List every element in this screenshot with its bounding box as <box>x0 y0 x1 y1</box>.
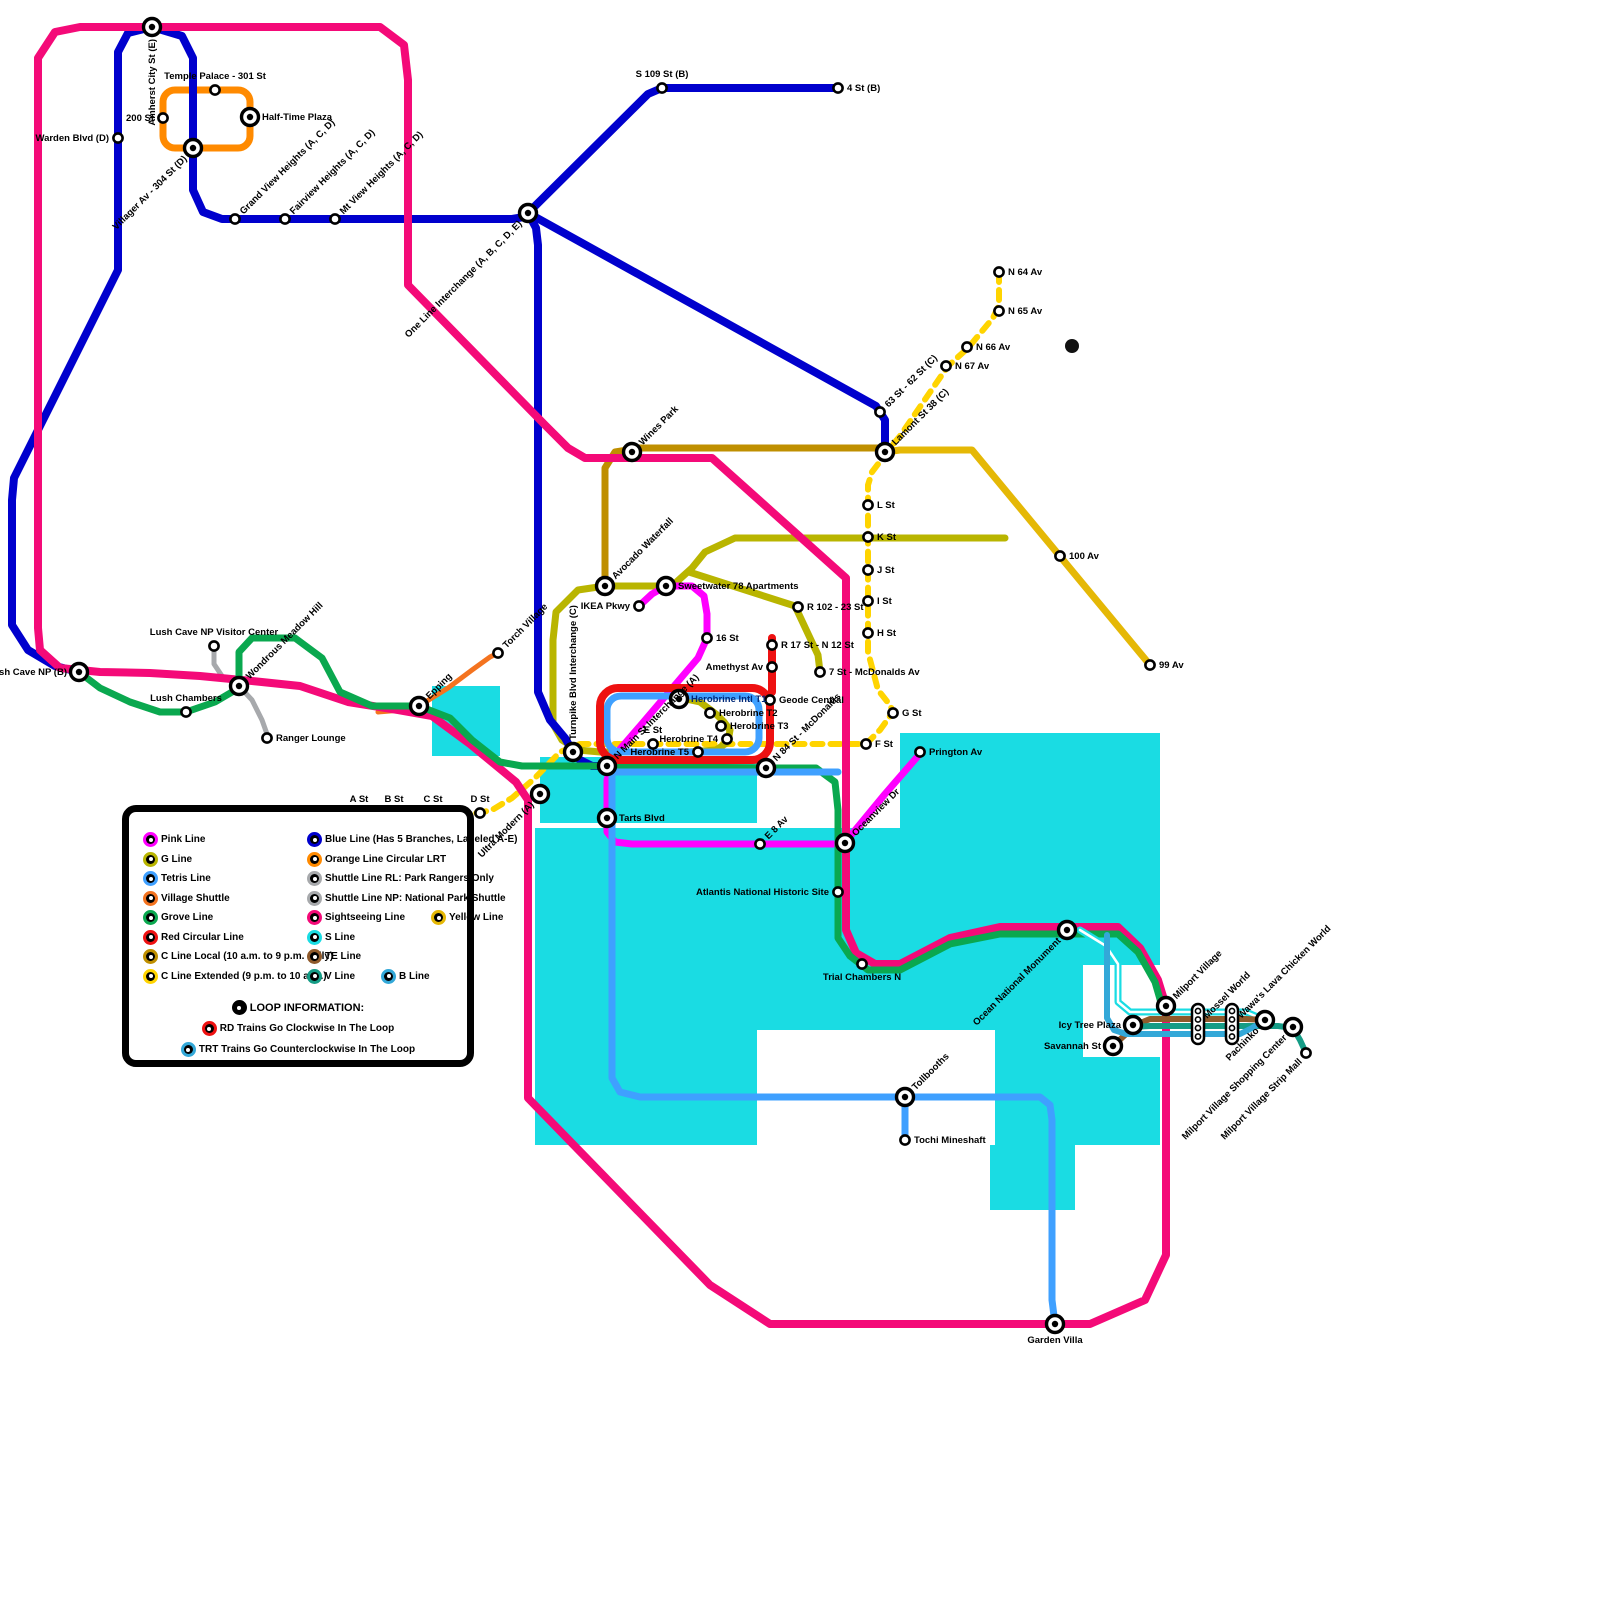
legend-line-icon <box>143 832 158 847</box>
station-label-fairview-heights: Fairview Heights (A, C, D) <box>288 127 378 217</box>
legend-left-column: Pink LineG LineTetris LineVillage Shuttl… <box>143 830 333 986</box>
station-amherst-city-dot <box>149 24 155 30</box>
legend-item-label: V Line <box>325 971 355 982</box>
station-label-ikea-pkwy: IKEA Pkwy <box>581 601 631 612</box>
station-turnpike-blvd-dot <box>570 749 576 755</box>
legend-item: G Line <box>143 850 333 870</box>
station-label-f-st: F St <box>875 739 894 750</box>
station-label-herobrine-t5: Herobrine T5 <box>630 747 689 758</box>
station-label-lush-cave-visitor-center: Lush Cave NP Visitor Center <box>150 627 279 638</box>
station-wawa-lava-chicken-node <box>1229 1008 1234 1013</box>
station-label-c-st: C St <box>424 794 444 805</box>
map-area-water <box>990 1145 1075 1210</box>
legend-line-icon <box>307 832 322 847</box>
legend-item: TE Line <box>307 947 517 967</box>
station-atlantis-site <box>833 887 842 896</box>
station-label-200-st: 200 St <box>126 113 155 124</box>
station-label-n-66-av: N 66 Av <box>976 342 1011 353</box>
station-lush-cave-visitor-center <box>209 641 218 650</box>
station-herobrine-t3 <box>716 721 725 730</box>
station-label-n-65-av: N 65 Av <box>1008 306 1043 317</box>
station-grand-view-heights <box>230 214 239 223</box>
station-avocado-waterfall-dot <box>602 583 608 589</box>
station-label-lush-cave-np: Lush Cave NP (B) <box>0 667 67 678</box>
station-mossel-world-node <box>1195 1034 1200 1039</box>
station-label-n-64-av: N 64 Av <box>1008 267 1043 278</box>
legend-item: S Line <box>307 928 517 948</box>
station-label-tarts-blvd: Tarts Blvd <box>619 813 665 824</box>
station-half-time-plaza-dot <box>247 114 253 120</box>
station-g-st <box>888 708 897 717</box>
legend-item: Blue Line (Has 5 Branches, Labeled A-E) <box>307 830 517 850</box>
legend-item: Orange Line Circular LRT <box>307 850 517 870</box>
station-d-st <box>475 808 484 817</box>
legend-line-icon <box>143 969 158 984</box>
legend-item-label: Grove Line <box>161 912 213 923</box>
station-label-herobrine-t1: Herobrine Intl T1 <box>691 694 767 705</box>
legend-item: Shuttle Line NP: National Park Shuttle <box>307 889 517 909</box>
station-mossel-world-node <box>1195 1008 1200 1013</box>
station-milport-village-dot <box>1163 1003 1169 1009</box>
legend-item-label: Tetris Line <box>161 873 211 884</box>
station-h-st <box>863 628 872 637</box>
station-milport-shopping-center-dot <box>1290 1024 1296 1030</box>
legend-line-icon <box>431 910 446 925</box>
legend-item-label: Orange Line Circular LRT <box>325 854 446 865</box>
station-label-j-st: J St <box>877 565 895 576</box>
station-200-st <box>158 113 167 122</box>
station-label-g-st: G St <box>902 708 922 719</box>
station-label-tochi-mineshaft: Tochi Mineshaft <box>914 1135 986 1146</box>
loop-info-item: RD Trains Go Clockwise In The Loop <box>129 1021 467 1036</box>
station-milport-strip-mall <box>1301 1048 1310 1057</box>
station-wines-park-dot <box>629 449 635 455</box>
station-epping-dot <box>416 703 422 709</box>
station-sweetwater-78-dot <box>663 583 669 589</box>
station-label-r-17-st: R 17 St - N 12 St <box>781 640 855 651</box>
station-label-sweetwater-78: Sweetwater 78 Apartments <box>678 581 799 592</box>
station-n-main-st-dot <box>604 763 610 769</box>
decor-black-dot <box>1065 339 1079 353</box>
station-label-mt-view-heights: Mt View Heights (A, C, D) <box>338 129 426 217</box>
station-label-16-st: 16 St <box>716 633 740 644</box>
station-oceanview-dr-dot <box>842 840 848 846</box>
legend-item-label: Sightseeing Line <box>325 912 405 923</box>
station-n-84-st-dot <box>763 765 769 771</box>
legend-line-icon <box>143 910 158 925</box>
transit-map-canvas: Amherst City St (E)Temple Palace - 301 S… <box>0 0 1600 1600</box>
station-label-villager-av: Villager Av - 304 St (D) <box>111 154 190 233</box>
legend-item: Sightseeing Line <box>307 908 405 928</box>
station-lamont-st-38-dot <box>882 449 888 455</box>
station-label-turnpike-blvd: Turnpike Blvd Interchange (C) <box>568 605 579 740</box>
station-fairview-heights <box>280 214 289 223</box>
station-label-herobrine-t2: Herobrine T2 <box>719 708 778 719</box>
station-wawa-lava-chicken-node <box>1229 1017 1234 1022</box>
legend-item-label: Red Circular Line <box>161 932 244 943</box>
loop-info-line-icon <box>202 1021 217 1036</box>
legend-right-column: Blue Line (Has 5 Branches, Labeled A-E)O… <box>307 830 517 986</box>
legend-line-icon <box>307 930 322 945</box>
loop-info-item: TRT Trains Go Counterclockwise In The Lo… <box>129 1042 467 1057</box>
legend-line-icon <box>307 891 322 906</box>
station-herobrine-t2 <box>705 708 714 717</box>
station-geode-central <box>765 695 774 704</box>
station-label-ranger-lounge: Ranger Lounge <box>276 733 346 744</box>
line-orange-loop <box>163 90 250 148</box>
station-label-h-st: H St <box>877 628 897 639</box>
legend-line-icon <box>143 930 158 945</box>
station-herobrine-t5 <box>693 747 702 756</box>
station-one-line-interchange-dot <box>525 210 531 216</box>
legend-item: C Line Local (10 a.m. to 9 p.m. daily) <box>143 947 333 967</box>
station-label-100-av: 100 Av <box>1069 551 1100 562</box>
station-herobrine-t4 <box>722 734 731 743</box>
legend-item: Pink Line <box>143 830 333 850</box>
legend-line-icon <box>143 949 158 964</box>
station-mt-view-heights <box>330 214 339 223</box>
legend-item: B Line <box>381 967 430 987</box>
transit-map-page: Amherst City St (E)Temple Palace - 301 S… <box>0 0 1600 1600</box>
station-label-lush-chambers: Lush Chambers <box>150 693 222 704</box>
station-k-st <box>863 532 872 541</box>
station-label-s-109-st: S 109 St (B) <box>636 69 689 80</box>
station-label-milport-village: Milport Village <box>1171 948 1225 1002</box>
station-f-st <box>861 739 870 748</box>
loop-info-title: LOOP INFORMATION: <box>250 1002 364 1014</box>
line-c-local <box>605 448 885 590</box>
line-blue-b2 <box>152 27 528 219</box>
station-label-garden-villa: Garden Villa <box>1027 1335 1083 1346</box>
station-label-b-st: B St <box>385 794 405 805</box>
station-label-one-line-interchange: One Line Interchange (A, B, C, D, E) <box>403 219 525 341</box>
station-torch-village <box>493 648 502 657</box>
station-wondrous-meadow-hill-dot <box>236 683 242 689</box>
station-mossel-world-node <box>1195 1017 1200 1022</box>
station-label-l-st: L St <box>877 500 896 511</box>
line-yellow <box>885 450 1150 665</box>
station-ocean-monument-dot <box>1064 927 1070 933</box>
legend-box: Pink LineG LineTetris LineVillage Shuttl… <box>122 805 474 1067</box>
station-amethyst-av <box>767 662 776 671</box>
station-4-st <box>833 83 842 92</box>
station-ultra-modern-dot <box>537 791 543 797</box>
station-label-amethyst-av: Amethyst Av <box>706 662 764 673</box>
station-wawa-lava-chicken-node <box>1229 1034 1234 1039</box>
station-j-st <box>863 565 872 574</box>
station-label-savannah-st: Savannah St <box>1044 1041 1102 1052</box>
legend-item: Red Circular Line <box>143 928 333 948</box>
station-n-64-av <box>994 267 1003 276</box>
station-label-prington-av: Prington Av <box>929 747 983 758</box>
station-label-a-st: A St <box>350 794 369 805</box>
station-lush-chambers <box>181 707 190 716</box>
legend-line-icon <box>143 871 158 886</box>
station-label-99-av: 99 Av <box>1159 660 1184 671</box>
station-l-st <box>863 500 872 509</box>
legend-line-icon <box>307 910 322 925</box>
station-icy-tree-plaza-dot <box>1130 1022 1136 1028</box>
legend-line-icon <box>381 969 396 984</box>
loop-info-label: RD Trains Go Clockwise In The Loop <box>220 1023 394 1034</box>
station-label-torch-village: Torch Village <box>501 602 550 651</box>
station-label-7-st-mcdonalds: 7 St - McDonalds Av <box>829 667 920 678</box>
legend-line-icon <box>143 852 158 867</box>
map-area-cutout <box>757 1030 995 1145</box>
station-temple-palace <box>210 85 219 94</box>
station-label-milport-strip-mall: Milport Village Strip Mall <box>1219 1057 1305 1143</box>
station-r-102-23-st <box>793 602 802 611</box>
station-ikea-pkwy <box>634 601 643 610</box>
station-savannah-st-dot <box>1110 1043 1116 1049</box>
station-label-atlantis-site: Atlantis National Historic Site <box>696 887 829 898</box>
station-lush-cave-np-dot <box>76 669 82 675</box>
legend-item: C Line Extended (9 p.m. to 10 a.m.) <box>143 967 333 987</box>
legend-item-label: Yellow Line <box>449 912 503 923</box>
station-label-warden-blvd: Warden Blvd (D) <box>35 133 109 144</box>
station-label-wines-park: Wines Park <box>637 403 681 447</box>
legend-item-label: Shuttle Line RL: Park Rangers Only <box>325 873 494 884</box>
station-tarts-blvd-dot <box>604 815 610 821</box>
legend-item: Grove Line <box>143 908 333 928</box>
legend-loop-info: LOOP INFORMATION: RD Trains Go Clockwise… <box>129 1000 467 1063</box>
station-n-65-av <box>994 306 1003 315</box>
station-label-n-67-av: N 67 Av <box>955 361 990 372</box>
station-99-av <box>1145 660 1154 669</box>
station-villager-av-dot <box>190 145 196 151</box>
legend-item: V Line <box>307 967 355 987</box>
station-prington-av <box>915 747 924 756</box>
loop-info-items: RD Trains Go Clockwise In The LoopTRT Tr… <box>129 1021 467 1057</box>
station-r-17-st <box>767 640 776 649</box>
station-100-av <box>1055 551 1064 560</box>
legend-item-label: Pink Line <box>161 834 205 845</box>
legend-item-label: Shuttle Line NP: National Park Shuttle <box>325 893 506 904</box>
station-label-i-st: I St <box>877 596 893 607</box>
station-label-r-102-23-st: R 102 - 23 St <box>807 602 864 613</box>
legend-line-icon <box>307 969 322 984</box>
station-n-67-av <box>941 361 950 370</box>
station-n-66-av <box>962 342 971 351</box>
station-warden-blvd <box>113 133 122 142</box>
station-label-geode-central: Geode Central <box>779 695 844 706</box>
station-label-d-st: D St <box>471 794 491 805</box>
legend-item: Village Shuttle <box>143 889 333 909</box>
station-i-st <box>863 596 872 605</box>
station-label-4-st: 4 St (B) <box>847 83 880 94</box>
station-7-st-mcdonalds <box>815 667 824 676</box>
legend-item: Yellow Line <box>431 908 503 928</box>
legend-item-label: C Line Extended (9 p.m. to 10 a.m.) <box>161 971 327 982</box>
legend-item-label: TE Line <box>325 951 361 962</box>
station-garden-villa-dot <box>1052 1321 1058 1327</box>
station-label-avocado-waterfall: Avocado Waterfall <box>610 516 676 582</box>
line-blue-b3 <box>528 88 838 213</box>
loop-info-icon <box>232 1000 247 1015</box>
legend-item-label: G Line <box>161 854 192 865</box>
station-label-herobrine-t3: Herobrine T3 <box>730 721 789 732</box>
legend-item-label: S Line <box>325 932 355 943</box>
legend-item: Tetris Line <box>143 869 333 889</box>
station-e-8-av <box>755 839 764 848</box>
loop-info-line-icon <box>181 1042 196 1057</box>
station-label-trial-chambers-n: Trial Chambers N <box>823 972 901 983</box>
station-label-icy-tree-plaza: Icy Tree Plaza <box>1059 1020 1122 1031</box>
legend-line-icon <box>307 852 322 867</box>
station-ranger-lounge <box>262 733 271 742</box>
legend-line-icon <box>307 949 322 964</box>
legend-item-label: Village Shuttle <box>161 893 230 904</box>
legend-item-label: Blue Line (Has 5 Branches, Labeled A-E) <box>325 834 517 845</box>
station-trial-chambers-n <box>857 959 866 968</box>
loop-info-label: TRT Trains Go Counterclockwise In The Lo… <box>199 1044 415 1055</box>
station-63-62-st <box>875 407 884 416</box>
legend-item-label: B Line <box>399 971 430 982</box>
station-label-k-st: K St <box>877 532 897 543</box>
legend-line-icon <box>143 891 158 906</box>
station-label-half-time-plaza: Half-Time Plaza <box>262 112 333 123</box>
station-s-109-st <box>657 83 666 92</box>
station-label-temple-palace: Temple Palace - 301 St <box>164 71 267 82</box>
station-label-herobrine-t4: Herobrine T4 <box>659 734 718 745</box>
station-pachinko-dot <box>1262 1017 1268 1023</box>
station-16-st <box>702 633 711 642</box>
line-blue-b4 <box>528 213 885 452</box>
station-tochi-mineshaft <box>900 1135 909 1144</box>
legend-item: Shuttle Line RL: Park Rangers Only <box>307 869 517 889</box>
station-wawa-lava-chicken-node <box>1229 1025 1234 1030</box>
legend-line-icon <box>307 871 322 886</box>
station-label-wawa-lava-chicken: Wawa's Lava Chicken World <box>1236 923 1334 1021</box>
station-tollbooths-dot <box>902 1094 908 1100</box>
station-mossel-world-node <box>1195 1025 1200 1030</box>
